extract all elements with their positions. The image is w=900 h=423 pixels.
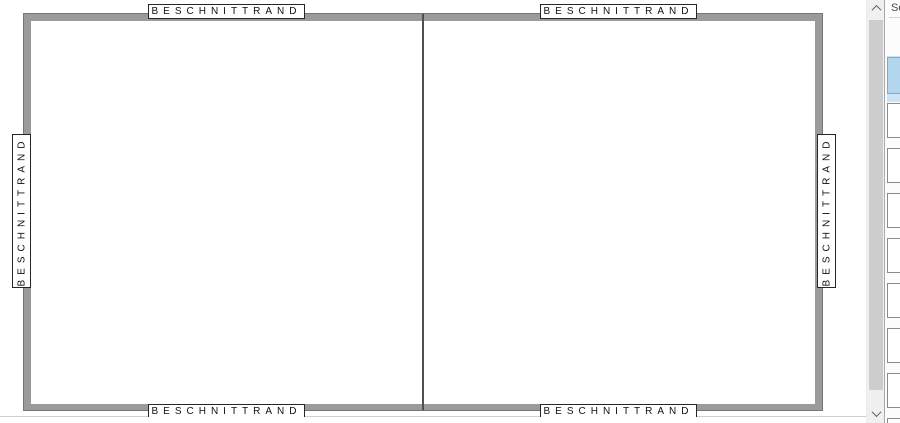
chevron-up-icon (871, 4, 881, 14)
bleed-label-bottom-right: BESCHNITTRAND (540, 404, 697, 417)
bleed-label-right-text: BESCHNITTRAND (821, 136, 832, 286)
panel-header-divider (889, 17, 900, 18)
chevron-down-icon (871, 407, 881, 417)
bleed-label-top-right: BESCHNITTRAND (540, 4, 697, 19)
scroll-up-button[interactable] (867, 0, 885, 16)
page-thumbnail-selected-page (887, 57, 900, 94)
design-canvas[interactable]: BESCHNITTRAND BESCHNITTRAND BESCHNITTRAN… (0, 0, 866, 417)
page-thumbnail[interactable] (887, 193, 900, 228)
left-page-surface[interactable] (31, 21, 422, 404)
viewport-bottom-divider (0, 416, 866, 417)
page-thumbnail[interactable] (887, 373, 900, 408)
pages-panel: Se (884, 0, 900, 423)
bleed-label-left-text: BESCHNITTRAND (16, 136, 27, 286)
page-thumbnail[interactable] (887, 283, 900, 318)
right-page-surface[interactable] (424, 21, 815, 404)
bleed-label-right: BESCHNITTRAND (817, 134, 836, 288)
page-thumbnail-selected[interactable] (887, 56, 900, 102)
bleed-label-bottom-left: BESCHNITTRAND (148, 404, 305, 417)
page-thumbnail[interactable] (887, 418, 900, 423)
page-gutter-divider (422, 14, 424, 410)
page-thumbnail[interactable] (887, 148, 900, 183)
scroll-down-button[interactable] (867, 405, 885, 421)
vertical-scrollbar[interactable] (866, 0, 884, 423)
page-thumbnail[interactable] (887, 103, 900, 138)
page-thumbnail[interactable] (887, 238, 900, 273)
pages-panel-header: Se (891, 2, 900, 14)
app-window: BESCHNITTRAND BESCHNITTRAND BESCHNITTRAN… (0, 0, 900, 423)
bleed-label-left: BESCHNITTRAND (12, 134, 31, 288)
scrollbar-thumb[interactable] (869, 20, 883, 390)
page-thumbnail-list (887, 103, 900, 423)
bleed-label-top-left: BESCHNITTRAND (148, 4, 305, 19)
page-thumbnail[interactable] (887, 328, 900, 363)
